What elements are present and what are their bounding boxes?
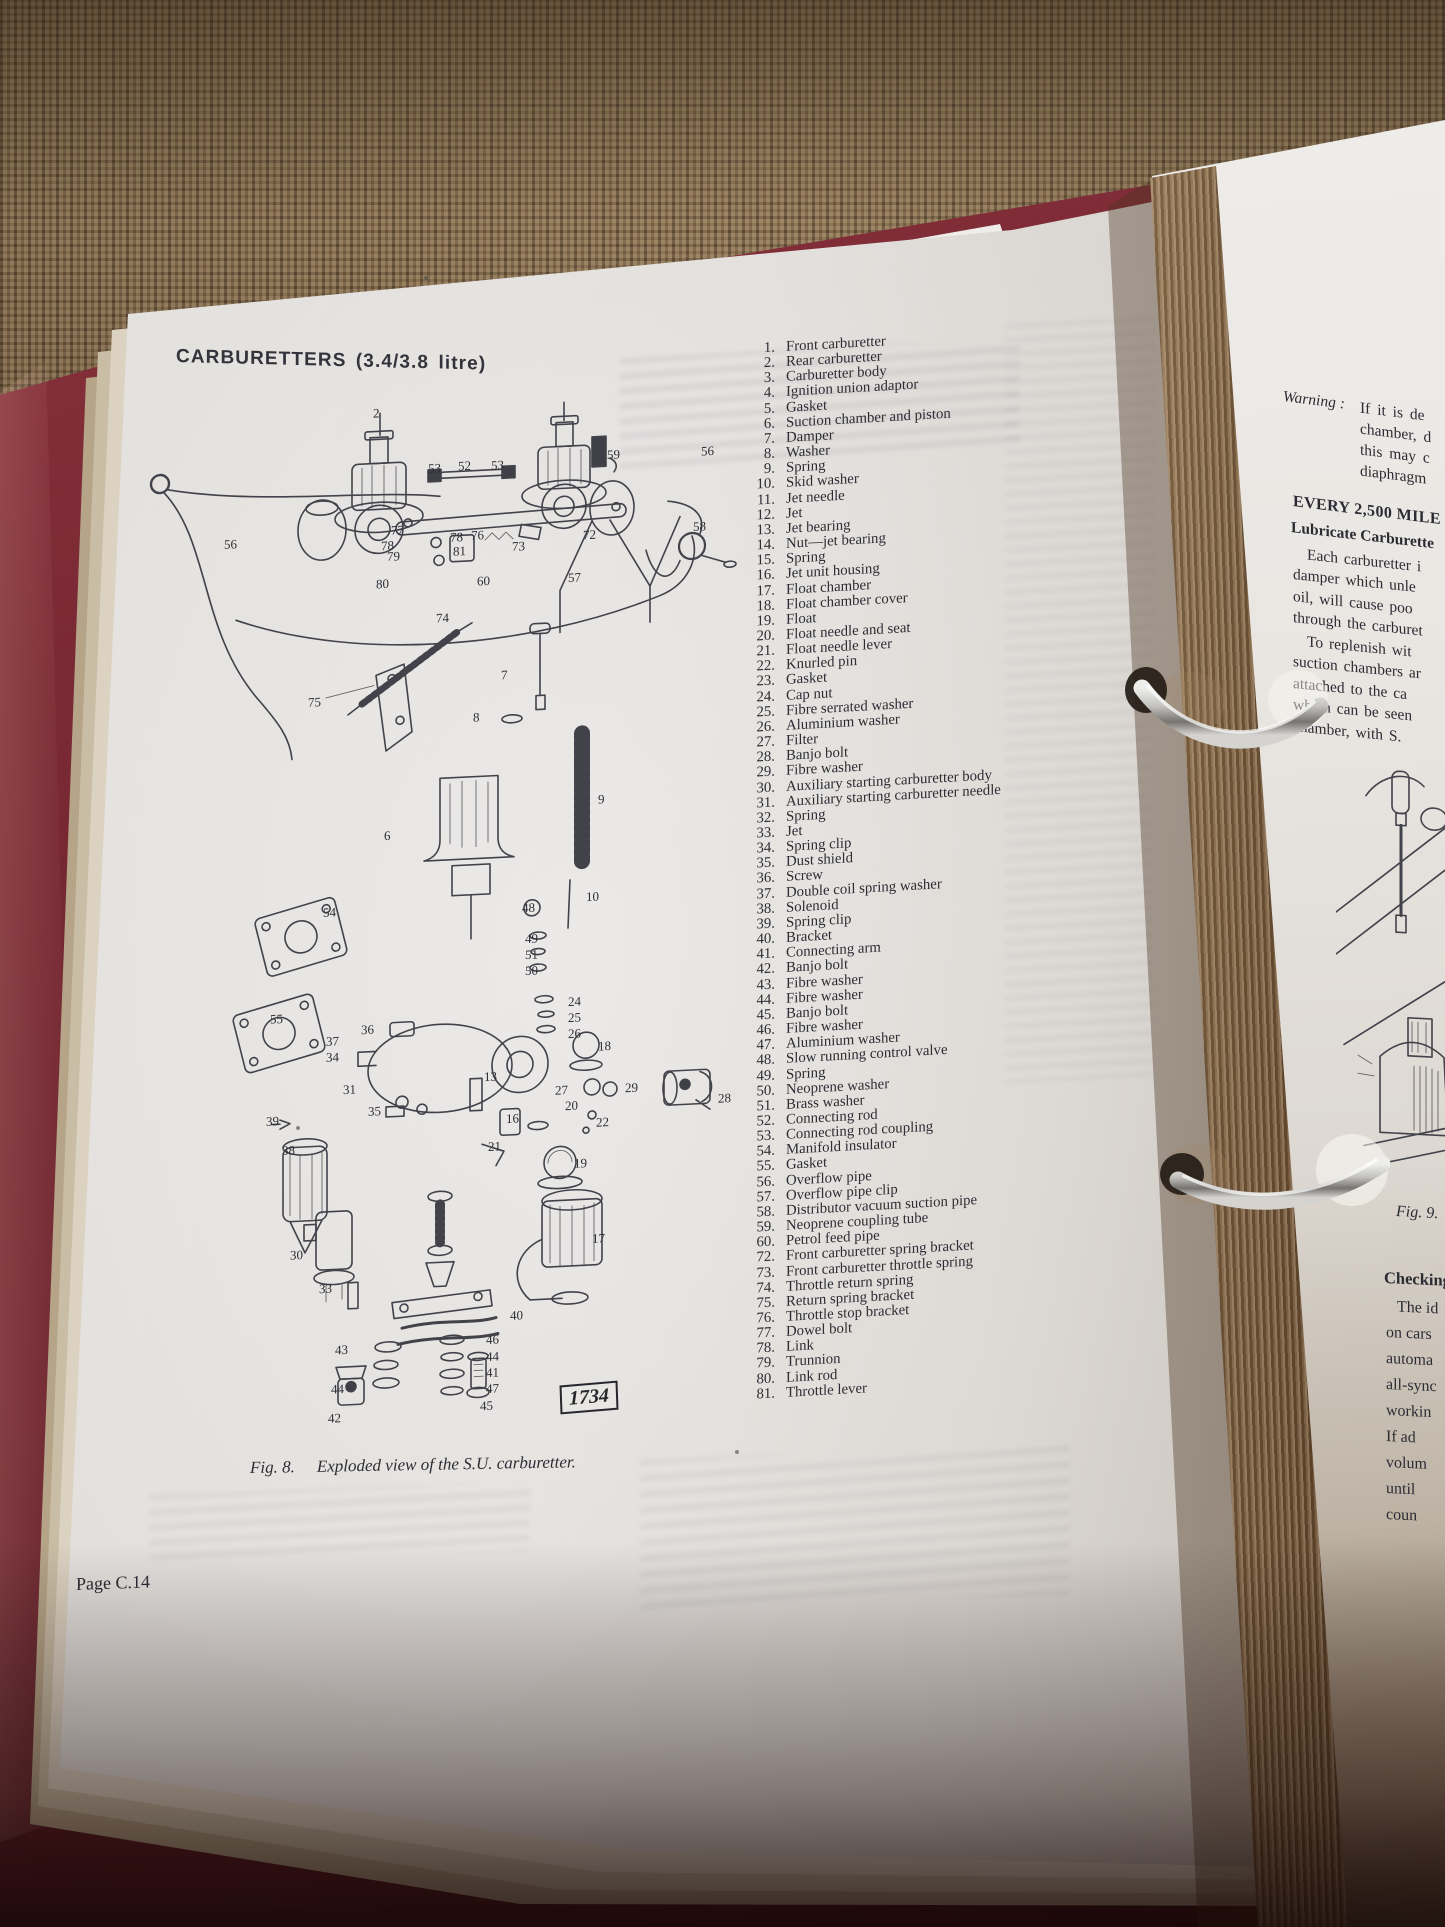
figure-callout: 80 bbox=[376, 576, 389, 593]
figure-callout: 9 bbox=[598, 791, 605, 807]
checking-heading: Checking bbox=[1384, 1268, 1445, 1291]
figure-callout: 52 bbox=[458, 458, 471, 475]
figure-callout: 39 bbox=[266, 1113, 279, 1130]
figure-callout: 54 bbox=[323, 904, 336, 921]
figure-callout: 49 bbox=[525, 931, 538, 948]
fig8-caption-text: Exploded view of the S.U. carburetter. bbox=[317, 1452, 576, 1476]
figure-callout: 25 bbox=[568, 1009, 581, 1026]
figure-callout: 75 bbox=[308, 694, 321, 711]
figure-callout: 35 bbox=[368, 1103, 381, 1120]
figure-callout: 42 bbox=[328, 1410, 341, 1427]
figure-callout: 44 bbox=[331, 1381, 344, 1398]
page-number: Page C.14 bbox=[76, 1571, 150, 1595]
figure-callout: 56 bbox=[224, 536, 237, 553]
figure-callout: 79 bbox=[387, 548, 400, 565]
figure-callout: 34 bbox=[326, 1049, 339, 1066]
figure-callout: 77 bbox=[391, 522, 404, 539]
figure-callout: 27 bbox=[555, 1082, 568, 1099]
figure-callout: 73 bbox=[512, 538, 525, 555]
figure-callout: 22 bbox=[596, 1114, 609, 1131]
figure-callout: 56 bbox=[701, 443, 714, 460]
figure-callout: 24 bbox=[568, 993, 581, 1010]
part-number: 81. bbox=[748, 1386, 786, 1403]
photo-of-workshop-manual: Warning : If it is dechamber, dthis may … bbox=[0, 0, 1445, 1927]
paragraph: Each carburetter idamper which unleoil, … bbox=[1293, 543, 1445, 646]
figure-callout: 51 bbox=[525, 947, 538, 964]
figure-callout: 60 bbox=[477, 573, 490, 590]
figure-callout: 36 bbox=[361, 1022, 374, 1039]
figure-callout: 19 bbox=[574, 1155, 587, 1172]
figure-callout: 6 bbox=[384, 828, 391, 844]
figure-callout: 53 bbox=[491, 457, 504, 474]
paragraph: To replenish witsuction chambers arattac… bbox=[1293, 630, 1445, 753]
figure-callout: 18 bbox=[598, 1038, 611, 1055]
figure-callout: 38 bbox=[282, 1142, 295, 1159]
fig8-caption-label: Fig. 8. bbox=[250, 1457, 295, 1477]
figure-callout: 59 bbox=[607, 447, 620, 464]
figure-callout: 37 bbox=[326, 1033, 339, 1050]
figure-callout: 74 bbox=[436, 610, 449, 627]
figure-callout: 28 bbox=[718, 1090, 731, 1107]
figure-callout: 7 bbox=[501, 667, 508, 683]
paragraph: The idon carsautomaall-syncworkinIf advo… bbox=[1386, 1294, 1445, 1532]
figure-callout: 55 bbox=[270, 1011, 283, 1028]
figure-callout: 44 bbox=[486, 1348, 499, 1365]
figure-callout: 8 bbox=[473, 709, 480, 725]
figure-callout: 40 bbox=[510, 1307, 523, 1324]
figure-callout: 21 bbox=[488, 1138, 501, 1155]
plate-number-box: 1734 bbox=[560, 1381, 619, 1415]
figure-callout: 53 bbox=[428, 460, 441, 477]
figure-callout: 58 bbox=[693, 518, 706, 535]
parts-list: 1.Front carburetter2.Rear carburetter3.C… bbox=[748, 328, 1001, 1403]
figure-callout: 57 bbox=[568, 569, 581, 586]
text-line: coun bbox=[1386, 1502, 1445, 1532]
dust-speck bbox=[735, 1450, 739, 1454]
figure-callout: 43 bbox=[335, 1342, 348, 1359]
warning-lines: If it is dechamber, dthis may cdiaphragm bbox=[1360, 397, 1445, 492]
figure-callout: 76 bbox=[471, 527, 484, 544]
figure-callout: 29 bbox=[625, 1080, 638, 1097]
part-label: Spring bbox=[786, 808, 825, 825]
exploded-diagram: 2535253595656587778787679817372806057747… bbox=[140, 386, 740, 1455]
figure-callout: 31 bbox=[343, 1081, 356, 1098]
figure-callout: 41 bbox=[486, 1364, 499, 1381]
figure-callout: 13 bbox=[484, 1069, 497, 1086]
figure-callout: 33 bbox=[319, 1281, 332, 1298]
figure-callout: 20 bbox=[565, 1098, 578, 1115]
figure-callout: 16 bbox=[506, 1110, 519, 1127]
figure-callout: 26 bbox=[568, 1025, 581, 1042]
figure-callout: 45 bbox=[480, 1398, 493, 1415]
dust-speck bbox=[424, 276, 428, 280]
figure-callout: 30 bbox=[290, 1247, 303, 1264]
figure-callout: 50 bbox=[525, 963, 538, 980]
fig9-illustration bbox=[1336, 762, 1445, 1198]
figure-callout: 47 bbox=[486, 1380, 499, 1397]
fig9-caption: Fig. 9. bbox=[1396, 1203, 1438, 1223]
figure-callout: 46 bbox=[486, 1331, 499, 1348]
figure-callout: 72 bbox=[583, 527, 596, 544]
figure-callout: 10 bbox=[586, 889, 599, 906]
figure-callout: 81 bbox=[453, 543, 466, 560]
figure-callout: 2 bbox=[373, 405, 380, 421]
figure-callout: 17 bbox=[592, 1230, 605, 1247]
figure-callout: 48 bbox=[522, 900, 535, 917]
